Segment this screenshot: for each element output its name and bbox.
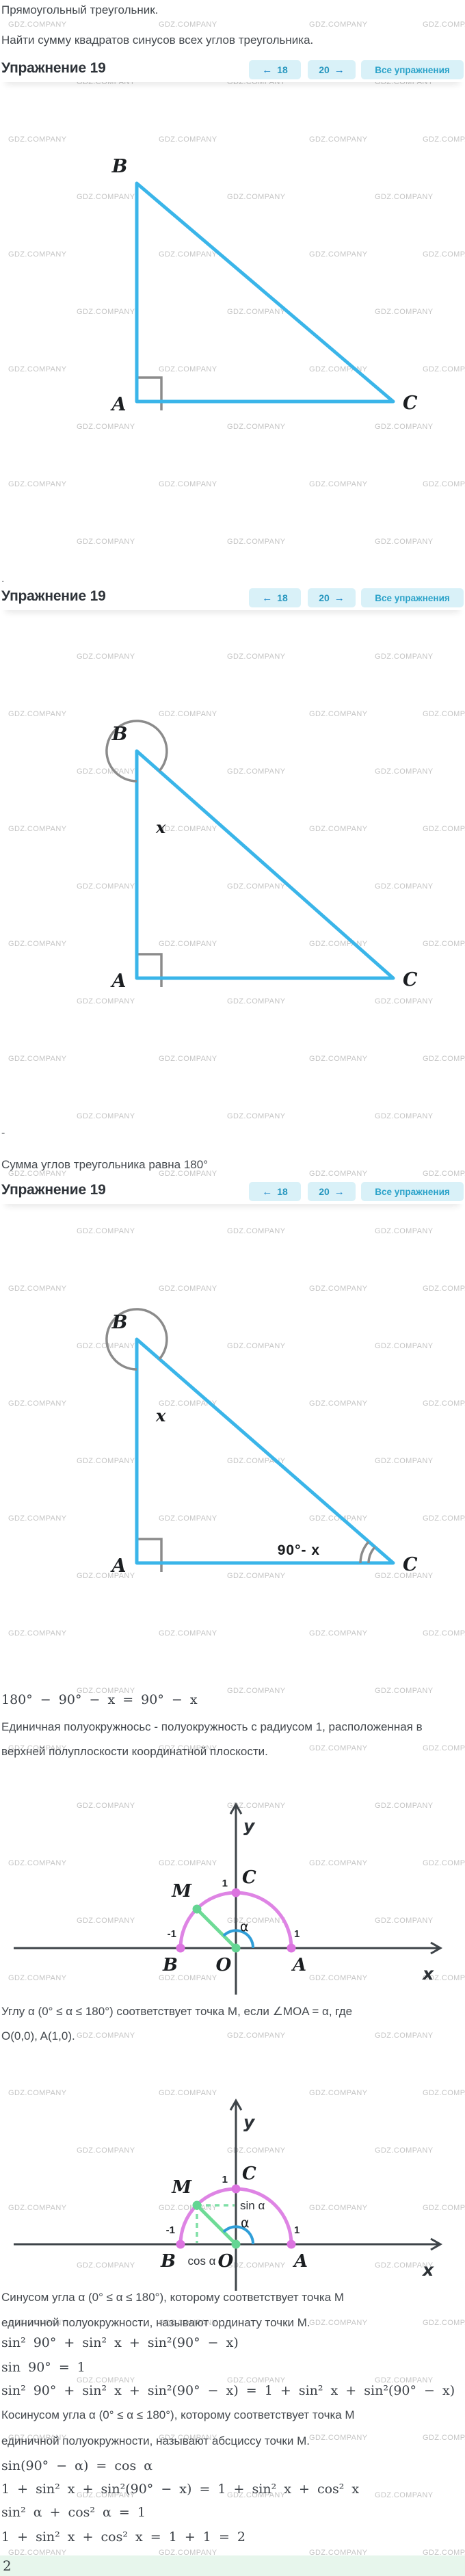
left-arrow-icon: ← (262, 592, 272, 604)
watermark-text: GDZ.COMPANY (77, 1112, 135, 1120)
watermark-text: GDZ.COMPANY (309, 1744, 367, 1752)
watermark-text: GDZ.COMPANY (375, 538, 433, 546)
right-angle-mark (137, 954, 161, 987)
angle-b-value: x (155, 817, 166, 837)
point-b-dot (176, 2240, 185, 2249)
vertex-c-label: C (403, 393, 418, 414)
triangle-figure-2: B x A C (0, 663, 465, 1047)
watermark-text: GDZ.COMPANY (8, 21, 66, 29)
x-axis (14, 1943, 440, 1954)
angle-point-text-2: O(0,0), A(1,0). (1, 2029, 75, 2044)
point-b-label: B (160, 2251, 176, 2272)
vertex-a-label: A (110, 394, 127, 415)
watermark-text: GDZ.COMPANY (227, 538, 285, 546)
vertex-b-label: B (111, 724, 128, 745)
all-exercises-button[interactable]: Все упражнения (361, 588, 464, 607)
exercise-header-2: Упражнение 19 ← 18 20 → Все упражнения (0, 586, 465, 610)
alpha-label: α (240, 1919, 249, 1934)
unit-semicircle-text-1: Единичная полуокружносьс - полуокружност… (1, 1720, 423, 1735)
y-axis-label: y (243, 1816, 256, 1836)
page: GDZ.COMPANYGDZ.COMPANYGDZ.COMPANYGDZ.COM… (0, 0, 465, 2576)
x-axis (14, 2239, 440, 2250)
vertex-a-label: A (110, 971, 127, 992)
watermark-text: GDZ.COMPANY (309, 2434, 367, 2442)
vertex-b-label: B (111, 1312, 128, 1333)
prev-exercise-number: 18 (277, 592, 288, 603)
sine-definition-2: единичной полуокружности, называют ордин… (1, 2315, 310, 2330)
separator-dot: . (1, 573, 4, 586)
left-arrow-icon: ← (262, 1186, 272, 1198)
origin-label: O (218, 2251, 234, 2272)
origin-dot (232, 1944, 241, 1953)
watermark-text: GDZ.COMPANY (77, 653, 135, 661)
point-b-dot (176, 1944, 185, 1953)
watermark-text: GDZ.COMPANY (375, 2491, 433, 2499)
triangle-figure-1: B A C (0, 96, 465, 479)
radius-om (197, 1909, 236, 1948)
angle-c-arc-inner (369, 1547, 375, 1563)
watermark-text: GDZ.COMPANY (227, 1227, 285, 1235)
problem-title: Прямоугольный треугольник. (1, 3, 158, 18)
exercise-header-3: Упражнение 19 ← 18 20 → Все упражнения (0, 1179, 465, 1204)
prev-exercise-number: 18 (277, 1186, 288, 1197)
next-exercise-number: 20 (319, 64, 330, 75)
formula-sin-90: sin 90° = 1 (1, 2360, 85, 2375)
angle-point-text-1: Углу α (0° ≤ α ≤ 180°) соответствует точ… (1, 2004, 352, 2019)
point-a-dot (287, 1944, 296, 1953)
left-arrow-icon: ← (262, 64, 272, 76)
angle-c-arc-outer (360, 1542, 369, 1563)
watermark-text: GDZ.COMPANY (309, 1055, 367, 1063)
angle-c-value: 90°- x (278, 1542, 320, 1558)
watermark-text: GDZ.COMPANY (159, 480, 217, 488)
point-a-label: A (291, 1955, 306, 1975)
next-exercise-button[interactable]: 20 → (308, 1182, 356, 1201)
all-exercises-button[interactable]: Все упражнения (361, 60, 464, 79)
watermark-text: GDZ.COMPANY (375, 653, 433, 661)
watermark-text: GDZ.COMPANY (227, 1687, 285, 1695)
right-arrow-icon: → (334, 592, 345, 604)
next-exercise-number: 20 (319, 1186, 330, 1197)
point-c-dot (232, 2185, 241, 2194)
point-a-label: A (292, 2251, 308, 2272)
alpha-label: α (241, 2216, 250, 2231)
watermark-text: GDZ.COMPANY (309, 480, 367, 488)
watermark-text: GDZ.COMPANY (375, 1687, 433, 1695)
tick-minus-one: -1 (166, 2224, 175, 2236)
watermark-text: GDZ.COMPANY (77, 1227, 135, 1235)
right-angle-mark (137, 378, 161, 410)
watermark-text: GDZ.COMPANY (423, 1744, 465, 1752)
watermark-text: GDZ.COMPANY (423, 2319, 465, 2327)
exercise-header-1: Упражнение 19 ← 18 20 → Все упражнения (0, 57, 465, 82)
all-exercises-button[interactable]: Все упражнения (361, 1182, 464, 1201)
exercise-title: Упражнение 19 (1, 60, 106, 77)
watermark-text: GDZ.COMPANY (8, 480, 66, 488)
tick-minus-one: -1 (168, 1928, 176, 1940)
watermark-text: GDZ.COMPANY (159, 1055, 217, 1063)
sum-of-angles-statement: Сумма углов треугольника равна 180° (1, 1157, 208, 1172)
watermark-text: GDZ.COMPANY (309, 2319, 367, 2327)
watermark-text: GDZ.COMPANY (309, 21, 367, 29)
triangle-figure-3: B x 90°- x A C (0, 1252, 465, 1635)
point-m-dot (193, 1905, 202, 1914)
prev-exercise-button[interactable]: ← 18 (249, 1182, 301, 1201)
tick-one-c: 1 (222, 1878, 228, 1889)
cosine-definition-2: единичной полуокружности, называют абсци… (1, 2434, 310, 2449)
right-arrow-icon: → (334, 1186, 345, 1198)
formula-sum-squares: sin² 90° + sin² x + sin²(90° − x) (1, 2335, 239, 2350)
answer-strip: 2 (0, 2555, 465, 2576)
watermark-text: GDZ.COMPANY (423, 1055, 465, 1063)
cosine-definition-1: Косинусом угла α (0° ≤ α ≤ 180°), которо… (1, 2408, 355, 2423)
formula-cofunction: sin(90° − α) = cos α (1, 2458, 152, 2473)
point-m-dot (193, 2201, 202, 2210)
x-axis-label: x (421, 2260, 434, 2280)
unit-semicircle-text-2: верхней полуплоскости координатной плоск… (1, 1744, 268, 1759)
triangle-outline (137, 751, 393, 978)
radius-om (197, 2205, 236, 2244)
separator-dash: - (1, 1127, 5, 1140)
watermark-text: GDZ.COMPANY (375, 2032, 433, 2040)
triangle-outline (137, 1339, 393, 1563)
point-c-label: C (242, 1867, 256, 1888)
point-b-label: B (162, 1955, 178, 1975)
watermark-text: GDZ.COMPANY (423, 1170, 465, 1178)
angle-b-value: x (155, 1406, 166, 1425)
prev-exercise-number: 18 (277, 64, 288, 75)
next-exercise-button[interactable]: 20 → (308, 60, 356, 79)
tick-one-a: 1 (294, 2224, 300, 2236)
sin-alpha-label: sin α (240, 2199, 265, 2212)
watermark-text: GDZ.COMPANY (77, 2032, 135, 2040)
watermark-text: GDZ.COMPANY (159, 21, 217, 29)
sine-definition-1: Синусом угла α (0° ≤ α ≤ 180°), которому… (1, 2290, 344, 2305)
next-exercise-number: 20 (319, 592, 330, 603)
point-c-dot (232, 1889, 241, 1897)
vertex-a-label: A (110, 1555, 127, 1577)
formula-substitute: sin² 90° + sin² x + sin²(90° − x) = 1 + … (1, 2383, 455, 2398)
problem-statement: Найти сумму квадратов синусов всех углов… (1, 33, 313, 48)
formula-pythagorean: sin² α + cos² α = 1 (1, 2505, 146, 2520)
watermark-text: GDZ.COMPANY (227, 1112, 285, 1120)
right-arrow-icon: → (334, 64, 345, 76)
watermark-text: GDZ.COMPANY (423, 2434, 465, 2442)
vertex-b-label: B (111, 156, 128, 177)
tick-one-a: 1 (294, 1928, 300, 1940)
vertex-c-label: C (403, 969, 418, 990)
point-m-label: M (171, 1881, 192, 1902)
exercise-title: Упражнение 19 (1, 1182, 106, 1198)
right-angle-mark (137, 1539, 161, 1572)
point-m-label: M (171, 2177, 192, 2198)
answer-value: 2 (3, 2558, 12, 2574)
cos-alpha-label: cos α (187, 2255, 215, 2268)
y-axis-label: y (243, 2112, 256, 2132)
x-axis-label: x (421, 1964, 434, 1984)
exercise-title: Упражнение 19 (1, 588, 106, 605)
unit-semicircle-plot-1: y x M C 1 -1 1 α B O A (0, 1791, 465, 2004)
formula-result: 1 + sin² x + cos² x = 1 + 1 = 2 (1, 2529, 245, 2545)
watermark-text: GDZ.COMPANY (227, 2032, 285, 2040)
origin-dot (232, 2240, 241, 2249)
formula-angle-c: 180° − 90° − x = 90° − x (1, 1692, 198, 1707)
point-c-label: C (242, 2164, 256, 2184)
watermark-text: GDZ.COMPANY (375, 1227, 433, 1235)
point-a-dot (287, 2240, 296, 2249)
prev-exercise-button[interactable]: ← 18 (249, 60, 301, 79)
y-axis (230, 1804, 241, 1995)
watermark-text: GDZ.COMPANY (77, 538, 135, 546)
watermark-text: GDZ.COMPANY (423, 480, 465, 488)
watermark-text: GDZ.COMPANY (309, 1170, 367, 1178)
vertex-c-label: C (403, 1554, 418, 1575)
next-exercise-button[interactable]: 20 → (308, 588, 356, 607)
prev-exercise-button[interactable]: ← 18 (249, 588, 301, 607)
watermark-text: GDZ.COMPANY (423, 21, 465, 29)
unit-semicircle-plot-2: y x M C 1 -1 1 sin α α B cos α O A (0, 2085, 465, 2298)
watermark-text: GDZ.COMPANY (375, 1112, 433, 1120)
watermark-text: GDZ.COMPANY (227, 653, 285, 661)
watermark-text: GDZ.COMPANY (8, 1055, 66, 1063)
triangle-outline (137, 183, 393, 402)
formula-replace: 1 + sin² x + sin²(90° − x) = 1 + sin² x … (1, 2482, 359, 2497)
origin-label: O (216, 1955, 232, 1975)
tick-one-c: 1 (222, 2174, 228, 2185)
